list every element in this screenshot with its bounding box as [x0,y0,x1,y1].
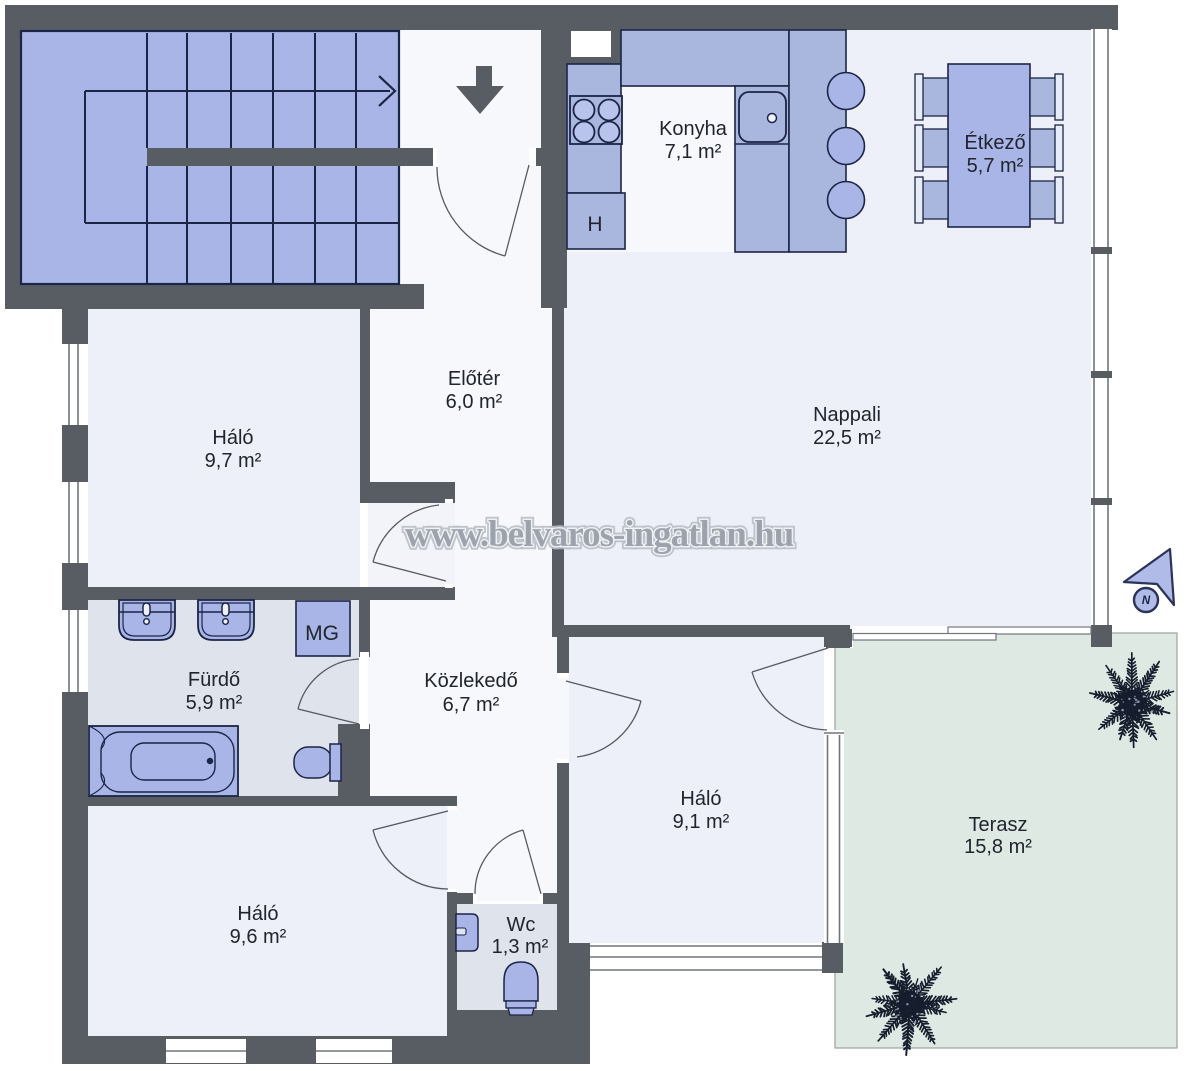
svg-text:Fürdő: Fürdő [188,669,240,691]
svg-text:9,1 m²: 9,1 m² [673,811,730,833]
svg-text:5,7 m²: 5,7 m² [967,155,1024,177]
svg-text:H: H [587,213,602,236]
svg-text:Terasz: Terasz [969,814,1028,836]
svg-text:Közlekedő: Közlekedő [424,670,517,692]
svg-text:9,7 m²: 9,7 m² [205,450,262,472]
svg-text:Előtér: Előtér [448,368,501,390]
svg-text:6,7 m²: 6,7 m² [443,694,500,716]
svg-text:MG: MG [305,622,339,645]
svg-text:Wc: Wc [507,914,536,936]
svg-text:Étkező: Étkező [964,131,1025,154]
svg-text:Háló: Háló [237,903,278,925]
svg-text:22,5 m²: 22,5 m² [813,427,881,449]
svg-text:Háló: Háló [680,788,721,810]
svg-text:N: N [1142,595,1151,607]
svg-text:9,6 m²: 9,6 m² [230,926,287,948]
svg-text:Háló: Háló [212,427,253,449]
svg-text:Konyha: Konyha [659,118,728,140]
svg-text:www.belvaros-ingatlan.hu: www.belvaros-ingatlan.hu [405,514,794,555]
svg-text:6,0 m²: 6,0 m² [446,391,503,413]
svg-text:1,3 m²: 1,3 m² [492,936,549,958]
svg-text:5,9 m²: 5,9 m² [186,692,243,714]
svg-text:Nappali: Nappali [813,404,881,426]
svg-text:15,8 m²: 15,8 m² [964,836,1032,858]
svg-text:7,1 m²: 7,1 m² [665,141,722,163]
